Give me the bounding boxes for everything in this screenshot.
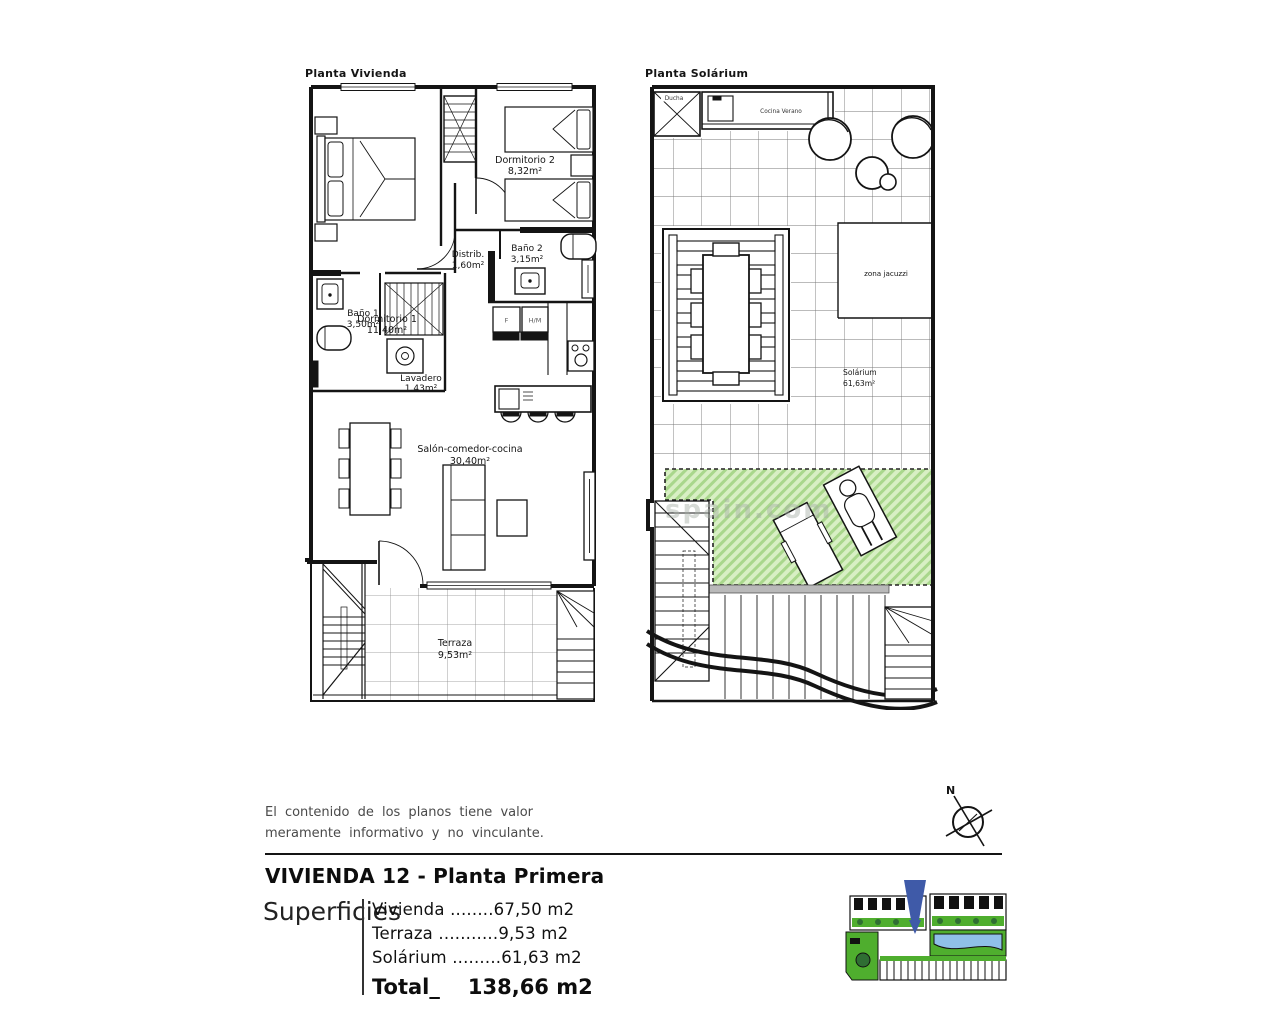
room-label-dormitorio2-name: Dormitorio 2 — [495, 155, 555, 166]
room-label-salon-area: 30,40m² — [450, 456, 490, 467]
compass-north-label: N — [946, 784, 955, 797]
window-dormitorio1 — [341, 84, 415, 91]
room-label-bano2-name: Baño 2 — [511, 244, 543, 254]
label-cocina-verano: Cocina Verano — [760, 109, 802, 115]
deck-edge-bar — [709, 585, 889, 593]
vivienda-floorplan-svg: F H/M Dormitorio 1 11,40m² Dormitorio 2 … — [305, 83, 600, 710]
dormitorio1-bed — [315, 117, 415, 241]
compass-icon: N — [928, 778, 1006, 850]
bano1-fixtures — [313, 279, 351, 387]
wardrobe — [444, 96, 476, 162]
room-label-bano1-area: 3,50m² — [347, 320, 380, 330]
surface-row-solarium: Solárium .........61,63 m2 — [372, 948, 593, 967]
terraza-stairs-left — [323, 563, 365, 699]
room-label-distrib-name: Distrib. — [452, 250, 484, 260]
surface-row-vivienda: Vivienda ........67,50 m2 — [372, 900, 593, 919]
kitchen-appliances — [493, 302, 594, 375]
room-label-dormitorio2-area: 8,32m² — [508, 166, 542, 177]
entry-wall-bar — [313, 270, 341, 276]
kitchen-island — [495, 386, 591, 422]
plumbing-wall — [488, 251, 495, 302]
total-value: 138,66 m2 — [468, 975, 593, 999]
disclaimer-line2: meramente informativo y no vinculante. — [265, 823, 565, 844]
surface-list: Vivienda ........67,50 m2 Terraza ......… — [372, 900, 593, 999]
appliance-label-oven: H/M — [529, 317, 542, 325]
total-label: Total_ — [372, 975, 440, 999]
room-label-terraza-area: 9,53m² — [438, 650, 472, 661]
room-label-lavadero-area: 1,43m² — [405, 384, 438, 394]
label-zona-jacuzzi: zona jacuzzi — [864, 269, 908, 278]
room-label-lavadero-name: Lavadero — [400, 374, 442, 384]
label-ducha: Ducha — [665, 96, 684, 102]
superficies-divider — [362, 899, 364, 995]
room-label-terraza-name: Terraza — [437, 638, 472, 649]
window-dormitorio2 — [497, 84, 572, 91]
plan-solarium-title: Planta Solárium — [645, 67, 748, 80]
unit-title: VIVIENDA 12 - Planta Primera — [265, 864, 604, 888]
disclaimer-line1: El contenido de los planos tiene valor — [265, 802, 565, 823]
disclaimer: El contenido de los planos tiene valor m… — [265, 802, 565, 845]
wall-fill-dorm2 — [520, 227, 594, 233]
room-label-bano1-name: Baño 1 — [347, 309, 379, 319]
solarium-floorplan-svg: Ducha Cocina Verano zona jacuzzi Soláriu… — [645, 83, 940, 710]
watermark: spain.com — [665, 495, 832, 525]
surface-row-terraza: Terraza ...........9,53 m2 — [372, 924, 593, 943]
parking-row — [880, 956, 1006, 980]
footer-divider — [265, 853, 1002, 855]
appliance-label-fridge: F — [505, 317, 509, 325]
surface-total-row: Total_138,66 m2 — [372, 975, 593, 999]
plan-vivienda-title: Planta Vivienda — [305, 67, 407, 80]
window-salon — [427, 582, 551, 589]
solarium-stairs-right — [885, 607, 933, 699]
terraza-stairs-right — [557, 591, 594, 699]
room-label-distrib-area: 1,60m² — [452, 261, 485, 271]
label-solarium-name: Solárium — [843, 368, 877, 377]
label-solarium-area: 61,63m² — [843, 379, 875, 388]
room-label-bano2-area: 3,15m² — [511, 255, 544, 265]
site-plan-thumbnail — [838, 880, 1016, 988]
floorplan-page: { "watermark": "spain.com", "plan_vivien… — [0, 0, 1280, 1024]
room-label-salon-name: Salón-comedor-cocina — [417, 444, 522, 455]
